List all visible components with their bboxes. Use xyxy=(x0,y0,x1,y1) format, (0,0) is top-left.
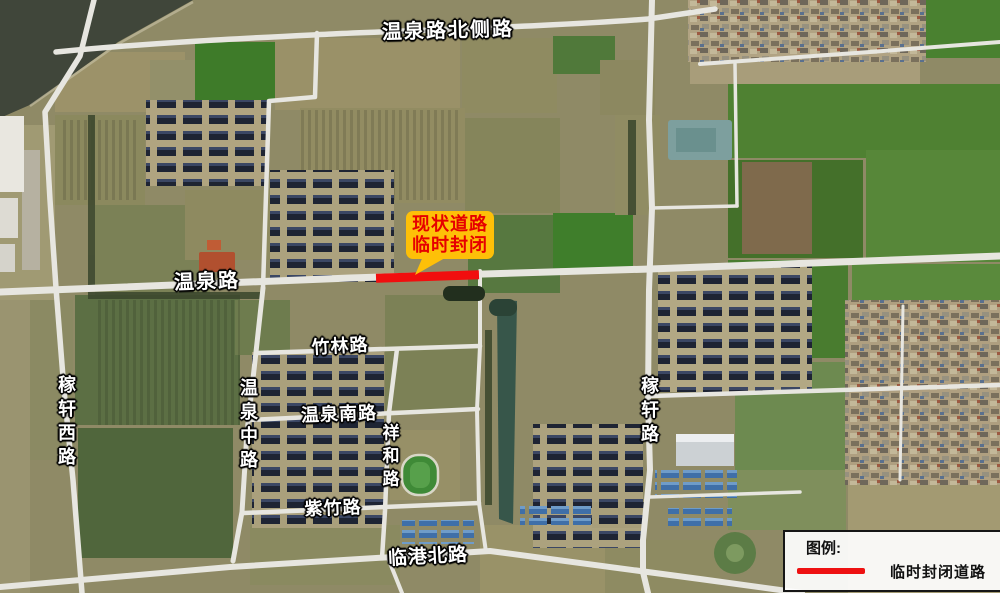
road-label-jiaxuan: 稼轩路 xyxy=(640,376,658,448)
closed-road-legend-line-icon xyxy=(797,568,865,574)
legend-item-label: 临时封闭道路 xyxy=(890,561,986,582)
road-label-zizhu: 紫竹路 xyxy=(304,498,362,518)
road-label-wenquan-middle: 温泉中路 xyxy=(239,378,257,474)
legend-panel: 图例: 临时封闭道路 xyxy=(783,530,1000,592)
road-label-wenquan-north-side: 温泉路北侧路 xyxy=(382,19,514,42)
closure-callout-line1: 现状道路 xyxy=(412,214,488,235)
road-label-wenquan-south: 温泉南路 xyxy=(301,404,378,425)
closure-callout: 现状道路 临时封闭 xyxy=(406,211,494,259)
road-label-zhulin: 竹林路 xyxy=(311,336,369,357)
satellite-base-image xyxy=(0,0,1000,593)
closure-callout-line2: 临时封闭 xyxy=(412,235,488,256)
legend-title: 图例: xyxy=(806,537,841,558)
road-label-xianghe: 祥和路 xyxy=(381,424,398,493)
road-label-lingang-north: 临港北路 xyxy=(388,545,469,568)
road-label-jiaxuan-west: 稼轩西路 xyxy=(57,375,75,471)
satellite-map: 温泉路北侧路 温泉路 稼轩西路 温泉中路 竹林路 温泉南路 祥和路 紫竹路 临港… xyxy=(0,0,1000,593)
road-label-wenquan: 温泉路 xyxy=(174,271,241,293)
